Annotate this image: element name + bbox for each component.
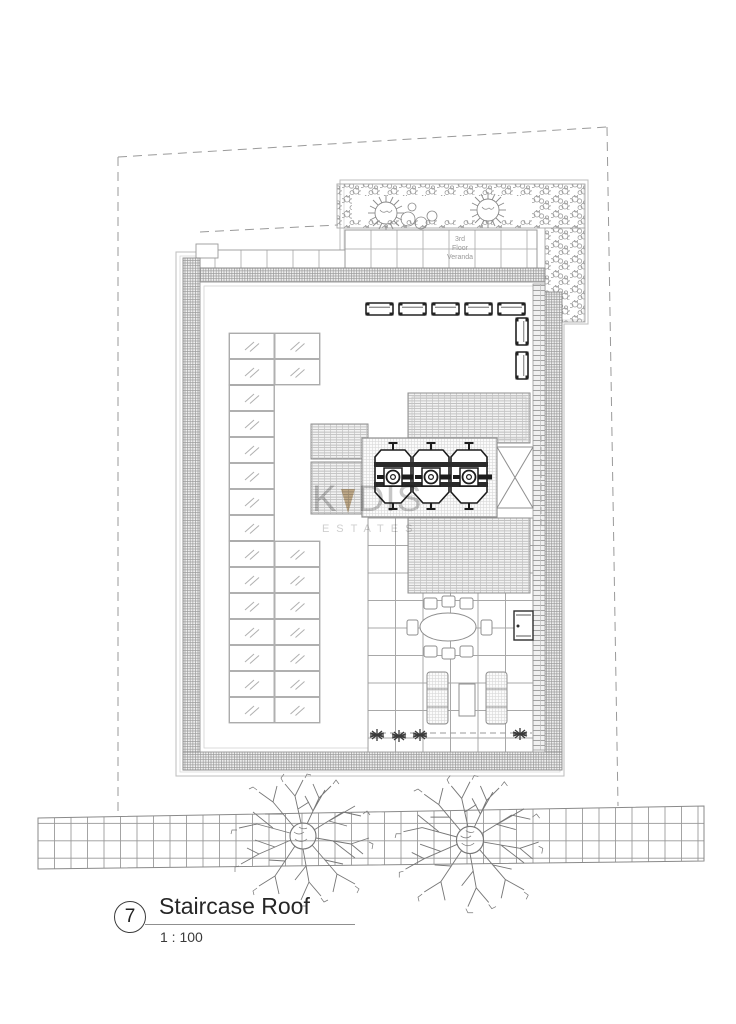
- drawing-scale: 1 : 100: [160, 929, 203, 945]
- ac-unit-icon: [399, 303, 427, 316]
- ac-unit-icon: [516, 318, 529, 346]
- drawing-title: Staircase Roof: [159, 893, 310, 920]
- veranda-label: 3rd Floor Veranda: [425, 236, 495, 262]
- ac-unit-icon: [465, 303, 493, 316]
- right-tile-strip: [533, 284, 545, 750]
- drawing-number-bubble: 7: [114, 901, 146, 933]
- dining-table: [420, 613, 476, 641]
- shaft-cross-box: [497, 447, 533, 508]
- ac-unit-icon: [498, 303, 526, 316]
- pavement-strip: [38, 806, 704, 869]
- title-underline: [145, 924, 355, 925]
- ac-unit-icon: [366, 303, 394, 316]
- floor-plan-page: K DIS ESTATES 3rd Floor Veranda 7 Stairc…: [0, 0, 736, 1024]
- ac-unit-icon: [516, 352, 529, 380]
- floor-plan-drawing: [0, 0, 736, 1024]
- solar-panel-overlay: [408, 518, 530, 593]
- roof-notch: [196, 244, 218, 258]
- ac-unit-icon: [432, 303, 460, 316]
- water-tank-platform: [362, 438, 497, 517]
- upper-tile-strip: [200, 250, 345, 268]
- bbq-unit: [514, 611, 533, 640]
- side-table: [459, 684, 475, 716]
